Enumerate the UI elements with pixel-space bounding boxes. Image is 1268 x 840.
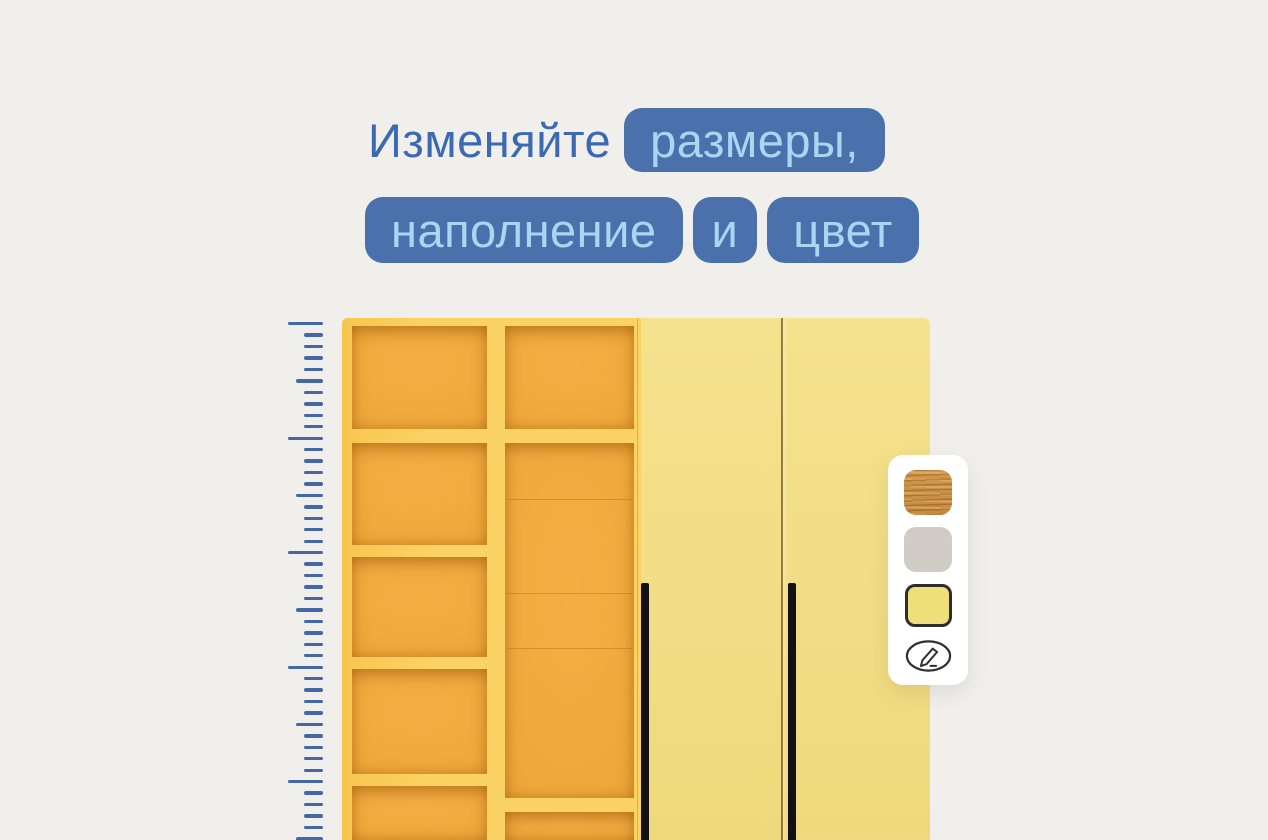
ruler-tick (288, 437, 323, 440)
oak-wood-swatch[interactable] (904, 470, 952, 515)
ruler-tick (304, 688, 323, 691)
ruler-tick (304, 345, 323, 348)
panel-seam (507, 648, 632, 649)
shelf-compartment[interactable] (505, 812, 634, 840)
ruler-tick (304, 769, 323, 772)
ruler-tick (288, 551, 323, 554)
ruler-tick (304, 574, 323, 577)
ruler-tick (304, 814, 323, 817)
edit-color-button[interactable] (905, 640, 952, 672)
door-handle-left[interactable] (641, 583, 649, 840)
ruler-tick (304, 414, 323, 417)
ruler-tick (304, 791, 323, 794)
ruler-tick (304, 597, 323, 600)
ruler-tick (304, 505, 323, 508)
headline-text: Изменяйте (368, 113, 611, 168)
ruler-tick (304, 700, 323, 703)
shelf-compartment[interactable] (352, 443, 487, 545)
ruler-tick (304, 368, 323, 371)
headline-line-1: Изменяйте размеры, (368, 108, 885, 172)
ruler-tick (304, 711, 323, 714)
ruler-tick (304, 448, 323, 451)
ruler-tick (304, 333, 323, 336)
panel-seam (507, 499, 632, 500)
ruler-tick (304, 459, 323, 462)
ruler-tick (304, 677, 323, 680)
ruler-tick (304, 826, 323, 829)
ruler-tick (288, 780, 323, 783)
ruler-tick (304, 540, 323, 543)
ruler-tick (288, 666, 323, 669)
ruler-tick (304, 620, 323, 623)
door-handle-right[interactable] (788, 583, 796, 840)
ruler-tick (304, 734, 323, 737)
ruler-tick (304, 402, 323, 405)
shelf-compartment[interactable] (352, 557, 487, 657)
ruler-tick (304, 803, 323, 806)
headline-badge-and: и (693, 197, 758, 263)
ruler-tick (304, 471, 323, 474)
ruler-tick (304, 757, 323, 760)
ruler-tick (304, 425, 323, 428)
shelf-compartment[interactable] (352, 786, 487, 840)
ruler-tick (296, 494, 323, 497)
ruler-tick (304, 746, 323, 749)
ruler-tick (296, 723, 323, 726)
wardrobe-shelving[interactable] (342, 318, 641, 840)
ruler-tick (304, 391, 323, 394)
shelf-compartment[interactable] (505, 326, 634, 429)
color-palette-panel (888, 455, 968, 685)
ruler-tick (304, 643, 323, 646)
ruler (288, 322, 323, 840)
ruler-tick (304, 631, 323, 634)
shelf-compartment[interactable] (352, 326, 487, 429)
ruler-tick (296, 608, 323, 611)
ruler-tick (304, 528, 323, 531)
ruler-tick (304, 356, 323, 359)
ruler-tick (304, 585, 323, 588)
shelf-tall-compartment[interactable] (505, 443, 634, 798)
headline-badge-color: цвет (767, 197, 918, 263)
wardrobe-door-left[interactable] (641, 318, 781, 840)
shelf-compartment[interactable] (352, 669, 487, 774)
ruler-tick (304, 562, 323, 565)
ruler-tick (304, 654, 323, 657)
headline-line-2: наполнение и цвет (365, 197, 919, 263)
gray-swatch[interactable] (904, 527, 952, 572)
panel-seam (507, 593, 632, 594)
pencil-icon (905, 660, 952, 675)
headline-badge-filling: наполнение (365, 197, 683, 263)
ruler-tick (304, 517, 323, 520)
ruler-tick (304, 482, 323, 485)
yellow-swatch[interactable] (905, 584, 952, 627)
promo-screen: Изменяйте размеры, наполнение и цвет (0, 0, 1268, 840)
ruler-tick (296, 379, 323, 382)
headline-badge-sizes: размеры, (624, 108, 885, 172)
ruler-tick (288, 322, 323, 325)
